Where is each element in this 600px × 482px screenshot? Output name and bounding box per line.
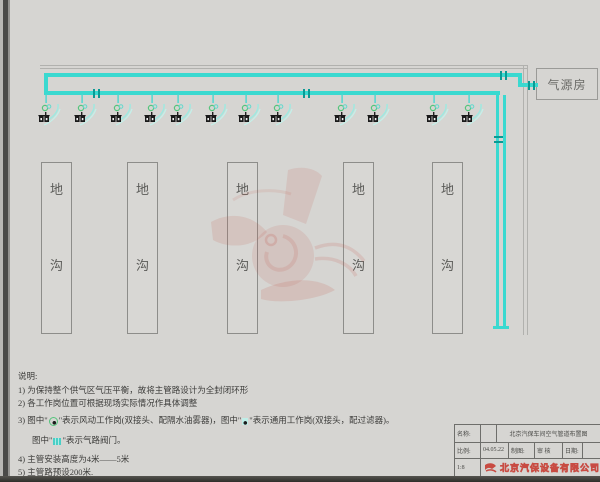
main-pipe-top	[44, 73, 522, 77]
note-line-2: 2) 各工作岗位置可根据现场实际情况作具体调整	[18, 399, 463, 409]
trench-column: 地沟	[127, 162, 158, 334]
review-label: 审 核	[535, 442, 563, 458]
date-value: 04.05.22	[481, 442, 509, 458]
trench-label-top: 地	[228, 179, 257, 198]
note-line-4: 4) 主管安装高度为4米——5米	[18, 455, 463, 465]
trench-label-bottom: 沟	[433, 255, 462, 274]
workstation-symbol	[366, 94, 392, 128]
note-line-3b: 图中""表示气路阀门。	[32, 436, 463, 446]
scan-edge-left	[0, 0, 10, 482]
notes-block: 说明: 1) 为保持整个供气区气压平衡，故将主管路设计为全封闭环形 2) 各工作…	[18, 372, 463, 477]
company-name: 北京汽保设备有限公司	[500, 461, 600, 474]
workstation-symbol	[109, 94, 135, 128]
trench-label-top: 地	[433, 179, 462, 198]
branch-pipe-end-cap	[493, 326, 509, 329]
scan-edge-bottom	[0, 476, 600, 482]
workstation-symbol	[269, 94, 295, 128]
scale-label: 比例:	[455, 442, 481, 458]
branch-pipe-vertical	[503, 95, 506, 328]
air-source-room-box: 气源房	[536, 68, 598, 100]
trench-label-top: 地	[128, 179, 157, 198]
notes-title: 说明:	[18, 372, 463, 382]
trench-label-bottom: 沟	[128, 255, 157, 274]
title-block-name-label: 名称:	[455, 425, 481, 442]
company-logo-cell: 北京汽保设备有限公司	[481, 458, 600, 477]
pipe-valve-icon	[500, 71, 507, 80]
building-wall-line	[527, 65, 528, 335]
workstation-symbol	[73, 94, 99, 128]
pipe-valve-icon	[494, 136, 503, 143]
building-wall-line	[40, 68, 527, 69]
air-source-room-label: 气源房	[547, 76, 586, 93]
date-label: 日期:	[563, 442, 583, 458]
draft-label: 制图:	[509, 442, 535, 458]
trench-label-bottom: 沟	[228, 255, 257, 274]
trench-label-bottom: 沟	[42, 255, 71, 274]
workstation-symbol	[143, 94, 169, 128]
title-block-empty-cell	[481, 425, 497, 442]
air-valve-symbol	[53, 438, 61, 445]
workstation-symbol	[460, 94, 486, 128]
workstation-symbol	[237, 94, 263, 128]
workstation-symbol	[204, 94, 230, 128]
trench-column: 地沟	[343, 162, 374, 334]
drawing-title: 北京汽保车间空气管道布置图	[497, 425, 600, 442]
title-block: 名称: 北京汽保车间空气管道布置图 比例: 04.05.22 制图: 审 核 日…	[454, 424, 600, 478]
building-wall-line	[523, 65, 524, 335]
trench-label-top: 地	[344, 179, 373, 198]
workstation-symbol	[37, 94, 63, 128]
trench-column: 地沟	[432, 162, 463, 334]
scale-value: 1:8	[455, 458, 481, 477]
company-logo-icon	[483, 461, 498, 474]
trench-column: 地沟	[41, 162, 72, 334]
pipe-valve-icon	[303, 89, 310, 98]
branch-pipe-vertical	[496, 91, 499, 328]
trench-label-top: 地	[42, 179, 71, 198]
trench-label-bottom: 沟	[344, 255, 373, 274]
drawing-page: 气源房 地沟地沟地沟地沟地沟 说明: 1) 为保持整个供气区气压平衡，故将主管路…	[0, 0, 600, 482]
workstation-symbol	[169, 94, 195, 128]
trench-column: 地沟	[227, 162, 258, 334]
pneumatic-station-symbol	[49, 417, 58, 426]
universal-station-symbol	[242, 418, 248, 425]
pipe-valve-icon	[528, 81, 535, 90]
note-line-1: 1) 为保持整个供气区气压平衡，故将主管路设计为全封闭环形	[18, 386, 463, 396]
workstation-symbol	[333, 94, 359, 128]
title-block-empty-cell	[583, 442, 600, 458]
note-line-3: 3) 图中""表示风动工作岗(双接头、配隔水油雾器)，图中""表示通用工作岗(双…	[18, 416, 463, 426]
building-wall-line	[40, 65, 527, 66]
workstation-symbol	[425, 94, 451, 128]
